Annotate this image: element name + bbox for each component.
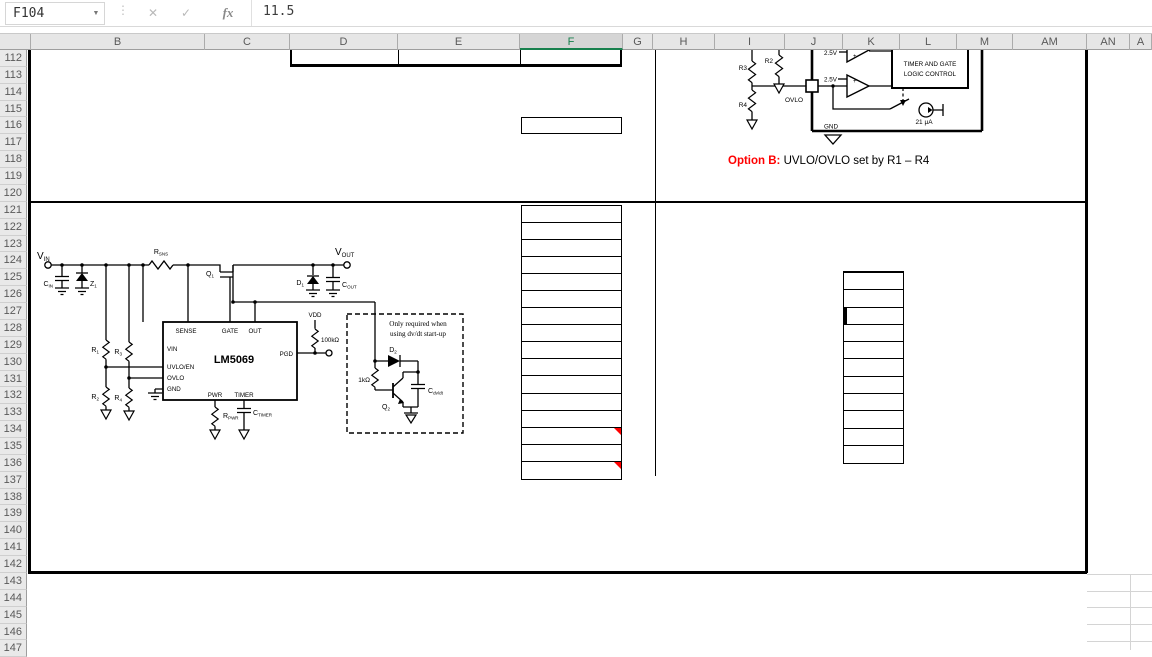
row-header-136[interactable]: 136 xyxy=(0,455,27,472)
row-header-124[interactable]: 124 xyxy=(0,252,27,269)
k-table-cell-4[interactable] xyxy=(844,325,903,342)
row-header-122[interactable]: 122 xyxy=(0,219,27,236)
pin-timer: TIMER xyxy=(234,392,254,399)
gridline xyxy=(1087,607,1152,608)
column-header-C[interactable]: C xyxy=(205,34,290,50)
label-pullup: 100kΩ xyxy=(321,337,339,344)
row-header-120[interactable]: 120 xyxy=(0,185,27,202)
label-ic-name: LM5069 xyxy=(214,354,254,366)
row-header-131[interactable]: 131 xyxy=(0,371,27,388)
row-header-121[interactable]: 121 xyxy=(0,202,27,219)
label-gnd: GND xyxy=(824,124,838,131)
row-header-127[interactable]: 127 xyxy=(0,303,27,320)
pin-ovlo: OVLO xyxy=(167,375,184,382)
pin-gnd: GND xyxy=(167,386,181,393)
label-r2: R2 xyxy=(765,58,774,65)
label-cin: CIN xyxy=(43,281,53,289)
row-header-117[interactable]: 117 xyxy=(0,134,27,151)
column-header-I[interactable]: I xyxy=(715,34,785,50)
formula-bar-separator xyxy=(251,0,252,26)
column-header-H[interactable]: H xyxy=(653,34,715,50)
label-q2: Q2 xyxy=(382,404,390,412)
pin-pgd: PGD xyxy=(280,351,294,358)
label-ctimer: CTIMER xyxy=(253,410,273,418)
label-r4: R4 xyxy=(114,395,122,403)
name-box-value[interactable]: F104 xyxy=(6,6,88,21)
lm5069-application-circuit: VIN VOUT RSNS Q1 CIN Z1 R1 R3 R2 R4 D1 C… xyxy=(29,202,655,572)
row-header-137[interactable]: 137 xyxy=(0,472,27,489)
label-ovlo-pin: OVLO xyxy=(785,97,803,104)
label-r2: R2 xyxy=(91,394,99,402)
column-header-M[interactable]: M xyxy=(957,34,1013,50)
row-header-145[interactable]: 145 xyxy=(0,607,27,624)
row-header-144[interactable]: 144 xyxy=(0,590,27,607)
comparator-plus-upper: + xyxy=(853,54,857,60)
row-header-138[interactable]: 138 xyxy=(0,489,27,506)
label-rsns: RSNS xyxy=(154,249,168,257)
gridline xyxy=(1087,591,1152,592)
label-vout: VOUT xyxy=(335,247,355,259)
k-table-cell-9[interactable] xyxy=(844,411,903,428)
row-header-113[interactable]: 113 xyxy=(0,67,27,84)
name-box-dropdown-icon[interactable]: ▼ xyxy=(88,10,104,17)
label-r1k: 1kΩ xyxy=(358,377,370,384)
pin-uvlo-en: UVLO/EN xyxy=(167,364,194,371)
column-header-E[interactable]: E xyxy=(398,34,520,50)
column-header-D[interactable]: D xyxy=(290,34,398,50)
formula-input[interactable]: 11.5 xyxy=(263,4,294,19)
row-header-123[interactable]: 123 xyxy=(0,236,27,253)
label-r4: R4 xyxy=(739,102,748,109)
column-header-F[interactable]: F xyxy=(520,34,623,50)
row-header-116[interactable]: 116 xyxy=(0,117,27,134)
logic-box-line1: TIMER AND GATE xyxy=(904,61,957,68)
gridline xyxy=(1087,641,1152,642)
label-rpwr: RPWR xyxy=(223,413,239,421)
row-header-143[interactable]: 143 xyxy=(0,573,27,590)
row-header-133[interactable]: 133 xyxy=(0,404,27,421)
column-header-B[interactable]: B xyxy=(31,34,205,50)
option-b-caption: Option B: UVLO/OVLO set by R1 – R4 xyxy=(728,155,929,167)
k-table-cell-2[interactable] xyxy=(844,290,903,307)
column-header-K[interactable]: K xyxy=(843,34,900,50)
pin-pwr: PWR xyxy=(208,392,223,399)
label-r3: R3 xyxy=(114,349,122,357)
row-header-115[interactable]: 115 xyxy=(0,101,27,118)
label-z1: Z1 xyxy=(90,281,97,289)
row-header-141[interactable]: 141 xyxy=(0,539,27,556)
note-line1: Only required when xyxy=(389,320,447,328)
column-header-G[interactable]: G xyxy=(623,34,653,50)
row-header-132[interactable]: 132 xyxy=(0,387,27,404)
insert-function-icon[interactable]: fx xyxy=(216,3,240,23)
label-vdd: VDD xyxy=(308,312,322,319)
cell-f116-box[interactable] xyxy=(521,117,622,134)
k-table-cell-1[interactable] xyxy=(844,273,903,290)
gridline xyxy=(1130,574,1131,650)
row-header-125[interactable]: 125 xyxy=(0,269,27,286)
k-table-cell-7[interactable] xyxy=(844,377,903,394)
label-cout: COUT xyxy=(342,282,357,290)
row-header-134[interactable]: 134 xyxy=(0,421,27,438)
column-headers: BCDEFGHIJKLMAMANA xyxy=(0,33,1152,50)
logic-box-line2: LOGIC CONTROL xyxy=(904,71,957,78)
row-header-119[interactable]: 119 xyxy=(0,168,27,185)
region-right-border xyxy=(1085,50,1088,573)
confirm-icon[interactable]: ✓ xyxy=(174,3,198,23)
row-header-147[interactable]: 147 xyxy=(0,640,27,657)
pin-gate: GATE xyxy=(222,328,238,335)
column-header-L[interactable]: L xyxy=(900,34,957,50)
column-header-J[interactable]: J xyxy=(785,34,843,50)
k-table-cell-8[interactable] xyxy=(844,394,903,411)
pin-sense: SENSE xyxy=(176,328,197,335)
row-header-129[interactable]: 129 xyxy=(0,337,27,354)
k-table-cell-11[interactable] xyxy=(844,446,903,463)
label-r1: R1 xyxy=(91,347,99,355)
row-header-140[interactable]: 140 xyxy=(0,522,27,539)
row-header-135[interactable]: 135 xyxy=(0,438,27,455)
label-d2: D2 xyxy=(389,347,397,355)
label-cdvdt: Cdv/dt xyxy=(428,388,444,396)
formula-bar-menu-dots-icon: ⋮ xyxy=(117,3,129,17)
row-header-118[interactable]: 118 xyxy=(0,151,27,168)
label-vin: VIN xyxy=(37,251,50,263)
comparator-plus-lower: + xyxy=(853,79,857,85)
gridline xyxy=(1087,624,1152,625)
pin-out: OUT xyxy=(248,328,261,335)
k-table-cell-3[interactable] xyxy=(844,308,903,325)
name-box[interactable]: F104 ▼ xyxy=(5,2,105,25)
pin-vin: VIN xyxy=(167,346,177,353)
row-header-112[interactable]: 112 xyxy=(0,50,27,67)
label-q1: Q1 xyxy=(206,271,214,279)
uvlo-ovlo-circuit-fragment: R3 R2 R4 OVLO 2.5V 2.5V + + TIMER AND GA… xyxy=(700,50,1000,152)
row-header-114[interactable]: 114 xyxy=(0,84,27,101)
label-current-source: 21 μA xyxy=(915,119,933,126)
top-table-bottom-border xyxy=(290,64,622,67)
row-header-130[interactable]: 130 xyxy=(0,354,27,371)
column-header-AM[interactable]: AM xyxy=(1013,34,1087,50)
k-table-cell-5[interactable] xyxy=(844,342,903,359)
row-header-139[interactable]: 139 xyxy=(0,505,27,522)
row-header-142[interactable]: 142 xyxy=(0,556,27,573)
row-header-126[interactable]: 126 xyxy=(0,286,27,303)
gridline xyxy=(1087,574,1152,575)
note-line2: using dv/dt start-up xyxy=(390,330,446,338)
option-b-text: UVLO/OVLO set by R1 – R4 xyxy=(780,155,929,167)
column-header-AN[interactable]: AN xyxy=(1087,34,1130,50)
label-d1: D1 xyxy=(296,280,304,288)
row-header-128[interactable]: 128 xyxy=(0,320,27,337)
option-b-label: Option B: xyxy=(728,155,780,167)
k-table-cell-10[interactable] xyxy=(844,429,903,446)
column-header-A[interactable]: A xyxy=(1130,34,1152,50)
k-column-cell-table xyxy=(843,271,904,464)
row-header-146[interactable]: 146 xyxy=(0,624,27,641)
cancel-icon[interactable]: ✕ xyxy=(141,3,165,23)
formula-bar: F104 ▼ ⋮ ✕ ✓ fx 11.5 xyxy=(0,0,1152,27)
k-table-cell-6[interactable] xyxy=(844,359,903,376)
label-r3: R3 xyxy=(739,65,748,72)
label-vref-upper: 2.5V xyxy=(824,50,838,57)
label-vref-lower: 2.5V xyxy=(824,77,838,84)
